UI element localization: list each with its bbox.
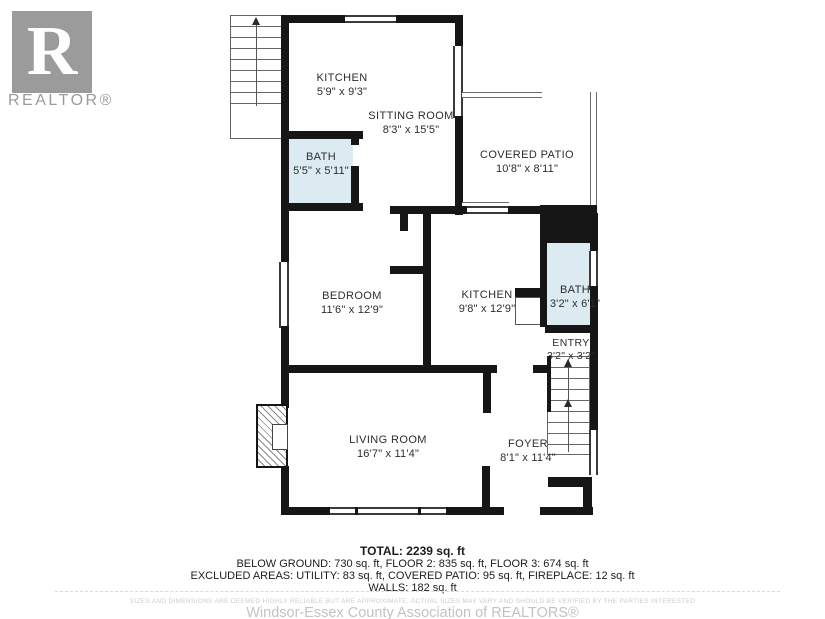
disclaimer-text: SIZES AND DIMENSIONS ARE DEEMED HIGHLY R…: [0, 598, 825, 605]
room-name: ENTRY: [521, 337, 621, 350]
room-label-foyer: FOYER 8'1" x 11'4": [473, 437, 583, 465]
firebox: [272, 424, 288, 450]
room-label-covered-patio: COVERED PATIO 10'8" x 8'11": [467, 148, 587, 176]
realtor-logo-icon: R: [12, 11, 92, 93]
room-name: KITCHEN: [287, 71, 397, 85]
window-mullion: [355, 507, 358, 515]
room-dims: 3'2" x 3'2": [521, 350, 621, 363]
wall: [283, 15, 347, 23]
room-name: FOYER: [473, 437, 583, 451]
summary-floors: BELOW GROUND: 730 sq. ft, FLOOR 2: 835 s…: [0, 558, 825, 570]
room-name: LIVING ROOM: [333, 433, 443, 447]
stair-up-arrow-icon: [564, 399, 572, 407]
wall: [283, 365, 497, 373]
summary-excluded: EXCLUDED AREAS: UTILITY: 83 sq. ft, COVE…: [0, 570, 825, 582]
room-label-living-room: LIVING ROOM 16'7" x 11'4": [333, 433, 443, 461]
stair-up-arrow-icon: [252, 17, 260, 25]
room-name: COVERED PATIO: [467, 148, 587, 162]
room-label-sitting-room: SITTING ROOM 8'3" x 15'5": [356, 109, 466, 137]
patio-rail: [462, 92, 542, 98]
room-dims: 3'2" x 6'1": [525, 297, 625, 311]
floorplan-page: R REALTOR®: [0, 0, 825, 619]
room-label-bath-main: BATH 3'2" x 6'1": [525, 283, 625, 311]
window: [279, 262, 289, 328]
wall: [396, 15, 463, 23]
room-name: BATH: [266, 150, 376, 164]
wall: [540, 507, 593, 515]
summary-walls: WALLS: 182 sq. ft: [0, 582, 825, 594]
room-label-kitchen-upper: KITCHEN 5'9" x 9'3": [287, 71, 397, 99]
wall: [400, 213, 408, 231]
window: [453, 46, 463, 118]
stair-centerline: [256, 24, 257, 106]
wall: [483, 373, 491, 413]
room-label-entry: ENTRY 3'2" x 3'2": [521, 337, 621, 363]
window: [330, 507, 448, 515]
room-dims: 8'1" x 11'4": [473, 451, 583, 465]
wall: [423, 213, 431, 373]
wall: [455, 15, 463, 48]
wall: [482, 507, 502, 515]
room-name: BATH: [525, 283, 625, 297]
room-name: SITTING ROOM: [356, 109, 466, 123]
wall: [590, 213, 598, 253]
window: [467, 206, 509, 214]
dashed-divider: [55, 591, 780, 592]
wall: [281, 507, 332, 515]
window: [345, 15, 398, 23]
room-dims: 5'9" x 9'3": [287, 85, 397, 99]
room-dims: 11'6" x 12'9": [297, 303, 407, 317]
room-label-bedroom: BEDROOM 11'6" x 12'9": [297, 289, 407, 317]
window: [589, 430, 598, 475]
wall: [545, 325, 598, 333]
room-dims: 10'8" x 8'11": [467, 162, 587, 176]
room-dims: 8'3" x 15'5": [356, 123, 466, 137]
association-text: Windsor-Essex County Association of REAL…: [0, 605, 825, 619]
room-dims: 5'5" x 5'11": [266, 164, 376, 178]
realtor-logo-label: REALTOR®: [8, 92, 114, 110]
patio-rail: [590, 92, 597, 207]
room-name: BEDROOM: [297, 289, 407, 303]
room-dims: 16'7" x 11'4": [333, 447, 443, 461]
realtor-logo-letter: R: [27, 17, 78, 87]
room-label-bath-upper: BATH 5'5" x 5'11": [266, 150, 376, 178]
wall: [281, 203, 289, 265]
summary-total: TOTAL: 2239 sq. ft: [0, 544, 825, 558]
window-mullion: [418, 507, 421, 515]
fireplace: [256, 404, 288, 468]
wall: [547, 356, 551, 412]
staircase-upper-left: [230, 15, 282, 139]
